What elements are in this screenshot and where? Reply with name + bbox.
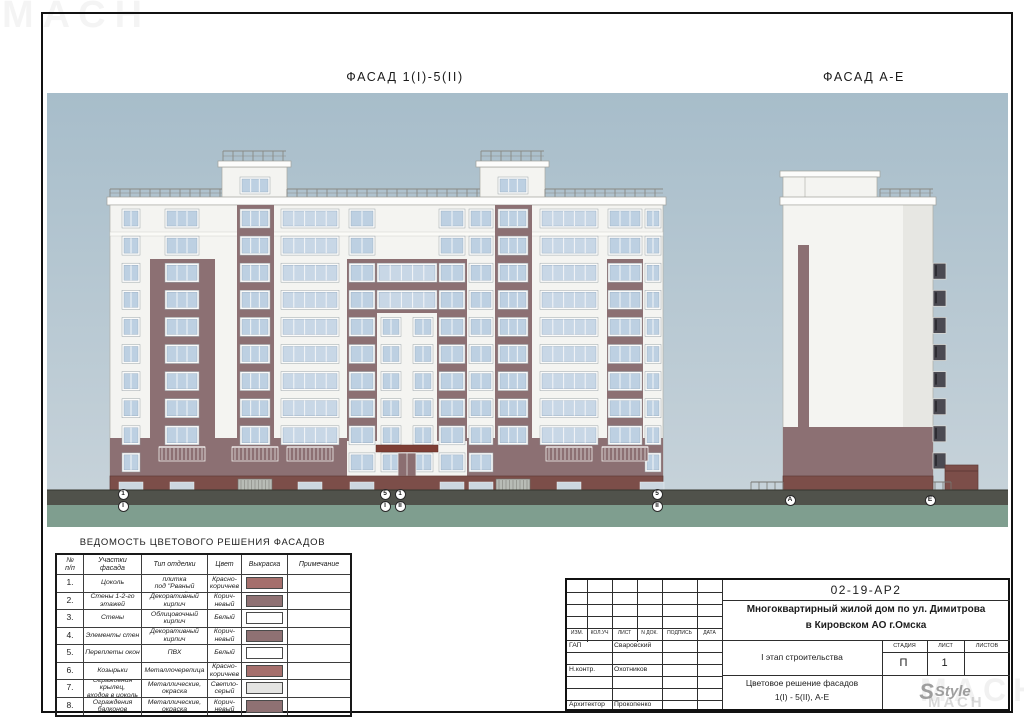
stamp-role: ГАП	[569, 640, 611, 652]
legend-facade-area: Стены 1-2-го этажей	[84, 593, 142, 611]
stamp-role	[569, 688, 611, 700]
stamp-grid-line	[662, 580, 663, 709]
stamp-grid-line	[567, 604, 722, 605]
stamp-name	[614, 652, 661, 664]
axis-marker-5-top: 5	[380, 489, 391, 500]
axis-marker-А: А	[785, 495, 796, 506]
stamp-role: Архитектор	[569, 700, 611, 709]
construction-stage: I этап строительства	[722, 640, 882, 675]
project-name-line2: в Кировском АО г.Омска	[722, 617, 1010, 634]
legend-finish-type: Металлические, окраска	[142, 698, 208, 716]
logo-s-glyph: S	[919, 680, 934, 704]
axis-marker-I-bottom: I	[380, 501, 391, 512]
color-swatch	[246, 665, 283, 677]
color-swatch	[246, 682, 283, 694]
stamp-header-ИЗМ.: ИЗМ.	[567, 628, 587, 640]
stamp-name: Прокопенко	[614, 700, 661, 709]
legend-note	[288, 663, 350, 681]
legend-note	[288, 628, 350, 646]
color-swatch	[246, 612, 283, 624]
facade-1	[107, 151, 666, 498]
project-name-line1: Многоквартирный жилой дом по ул. Димитро…	[722, 601, 1010, 618]
legend-row-number: 1.	[57, 575, 84, 593]
legend-row-number: 2.	[57, 593, 84, 611]
sheet-title-line2: 1(I) - 5(II), А-Е	[722, 690, 882, 706]
stage-value: П	[880, 652, 927, 675]
stamp-grid-line	[612, 580, 613, 709]
facades-drawing	[47, 93, 1008, 530]
drawing-sheet: МАСН МАСН МАСН ФАСАД 1(I)-5(II) ФАСАД А-…	[0, 0, 1024, 724]
legend-col-header: Цвет	[208, 555, 242, 575]
legend-swatch-cell	[242, 698, 288, 716]
legend-facade-area: Элементы стен	[84, 628, 142, 646]
stamp-grid-line	[722, 600, 1010, 601]
stamp-header-ЛИСТ: ЛИСТ	[612, 628, 637, 640]
legend-finish-type: Металлические, окраска	[142, 680, 208, 698]
sheets-total	[962, 652, 1010, 675]
legend-swatch-cell	[242, 575, 288, 593]
legend-swatch-cell	[242, 645, 288, 663]
legend-finish-type: Металлочерепица	[142, 663, 208, 681]
legend-col-header: № п/п	[57, 555, 84, 575]
legend-color-name: Белый	[208, 610, 242, 628]
axis-marker-II-bottom: II	[652, 501, 663, 512]
company-logo: SStyle	[882, 675, 1008, 709]
legend-col-header: Выкраска	[242, 555, 288, 575]
legend-row-number: 7.	[57, 680, 84, 698]
stamp-grid-line	[697, 580, 698, 709]
legend-table: № п/пУчастки фасадаТип отделкиЦветВыкрас…	[55, 553, 352, 717]
color-swatch	[246, 630, 283, 642]
legend-color-name: Белый	[208, 645, 242, 663]
stamp-name	[614, 688, 661, 700]
logo-text: Style	[935, 684, 971, 701]
stamp-stage-label: СТАДИЯ	[882, 640, 927, 652]
stamp-role	[569, 676, 611, 688]
legend-swatch-cell	[242, 593, 288, 611]
legend-note	[288, 575, 350, 593]
facade-1-title: ФАСАД 1(I)-5(II)	[300, 70, 510, 84]
legend-row-number: 4.	[57, 628, 84, 646]
legend-finish-type: Декоративный кирпич	[142, 628, 208, 646]
legend-row-number: 3.	[57, 610, 84, 628]
stamp-name: Сваровский	[614, 640, 661, 652]
axis-marker-II-bottom: II	[395, 501, 406, 512]
stamp-role	[569, 652, 611, 664]
stamp-sheet-label: ЛИСТ	[927, 640, 964, 652]
stamp-name	[614, 676, 661, 688]
elevation-scene: 1I5I1II5IIАЕ	[47, 93, 1008, 530]
color-swatch	[246, 595, 283, 607]
axis-marker-1-top: 1	[395, 489, 406, 500]
axis-marker-5-top: 5	[652, 489, 663, 500]
legend-note	[288, 610, 350, 628]
legend-finish-type: Облицовочный кирпич	[142, 610, 208, 628]
legend-color-name: Красно- коричнев	[208, 575, 242, 593]
stamp-grid-line	[567, 592, 722, 593]
legend-col-header: Тип отделки	[142, 555, 208, 575]
axis-marker-1-top: 1	[118, 489, 129, 500]
legend-color-name: Светло- серый	[208, 680, 242, 698]
legend-color-name: Корич- невый	[208, 628, 242, 646]
legend-col-header: Участки фасада	[84, 555, 142, 575]
legend-swatch-cell	[242, 663, 288, 681]
stamp-header-N ДОК.: N ДОК.	[637, 628, 662, 640]
legend-swatch-cell	[242, 628, 288, 646]
legend-facade-area: Стены	[84, 610, 142, 628]
legend-row-number: 8.	[57, 698, 84, 716]
legend-color-name: Красно- коричнев	[208, 663, 242, 681]
color-swatch	[246, 647, 283, 659]
stamp-header-КОЛ.УЧ: КОЛ.УЧ	[587, 628, 612, 640]
stamp-grid-line	[722, 675, 1010, 676]
legend-finish-type: Декоративный кирпич	[142, 593, 208, 611]
watermark-top-left: МАСН	[2, 0, 151, 37]
ground	[47, 490, 1008, 527]
sheet-number: 1	[925, 652, 964, 675]
title-block: 02-19-АР2 Многоквартирный жилой дом по у…	[565, 578, 1010, 711]
legend-facade-area: Ограждения крылец, входов в цоколь	[84, 680, 142, 698]
color-swatch	[246, 700, 283, 713]
legend-facade-area: Переплеты окон	[84, 645, 142, 663]
stamp-name: Охотников	[614, 664, 661, 676]
legend-color-name: Корич- невый	[208, 593, 242, 611]
stamp-grid-line	[567, 616, 722, 617]
legend-swatch-cell	[242, 680, 288, 698]
legend-finish-type: ПВХ	[142, 645, 208, 663]
stamp-sheets-label: ЛИСТОВ	[964, 640, 1010, 652]
stamp-grid-line	[882, 652, 1010, 653]
legend-swatch-cell	[242, 610, 288, 628]
stamp-role: Н.контр.	[569, 664, 611, 676]
axis-marker-I-bottom: I	[118, 501, 129, 512]
document-number: 02-19-АР2	[722, 581, 1010, 600]
stamp-header-ПОДПИСЬ: ПОДПИСЬ	[662, 628, 697, 640]
legend-facade-area: Козырьки	[84, 663, 142, 681]
legend-color-name: Корич- невый	[208, 698, 242, 716]
legend-facade-area: Ограждения балконов	[84, 698, 142, 716]
facade-2-title: ФАСАД А-Е	[789, 70, 939, 84]
legend-facade-area: Цоколь	[84, 575, 142, 593]
legend-row-number: 6.	[57, 663, 84, 681]
stamp-header-ДАТА: ДАТА	[697, 628, 722, 640]
legend-finish-type: Керамогранитная плитка под "Рваный камен…	[142, 575, 208, 593]
axis-marker-Е: Е	[925, 495, 936, 506]
color-legend: ВЕДОМОСТЬ ЦВЕТОВОГО РЕШЕНИЯ ФАСАДОВ № п/…	[55, 537, 350, 717]
legend-col-header: Примечание	[288, 555, 350, 575]
legend-note	[288, 593, 350, 611]
legend-row-number: 5.	[57, 645, 84, 663]
color-swatch	[246, 577, 283, 589]
legend-title: ВЕДОМОСТЬ ЦВЕТОВОГО РЕШЕНИЯ ФАСАДОВ	[55, 537, 350, 548]
legend-note	[288, 698, 350, 716]
legend-note	[288, 680, 350, 698]
legend-note	[288, 645, 350, 663]
